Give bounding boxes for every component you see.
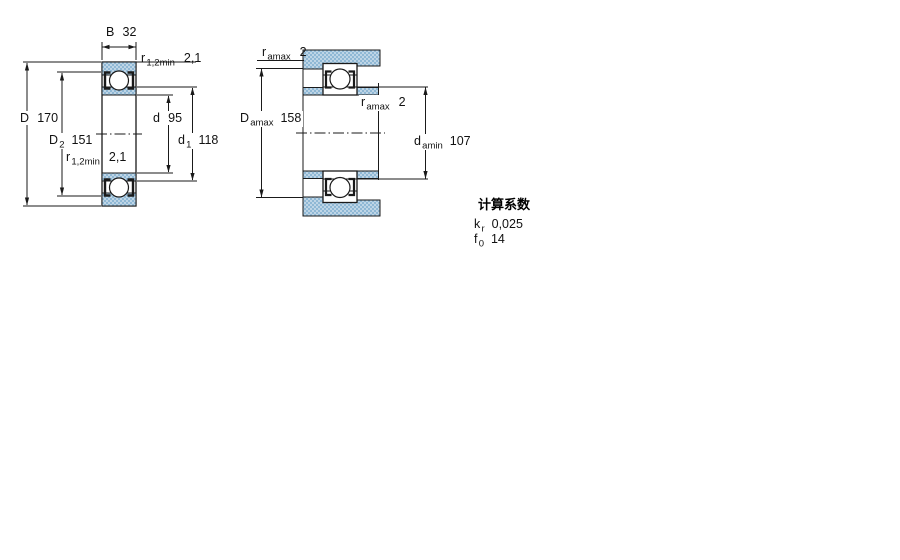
ball-top-right-figure (330, 69, 350, 89)
calc-factors-title: 计算系数 (478, 194, 530, 213)
ball-bottom (110, 178, 129, 197)
diagram-linework (0, 0, 900, 560)
dim-label-ramax-mid: ramax2 (359, 95, 408, 111)
dim-label-r12min-top: r1,2min2,1 (141, 51, 201, 67)
dim-label-D: D170 (18, 111, 60, 125)
dim-label-d1: d1118 (176, 133, 220, 149)
dim-label-D2: D2151 (47, 133, 94, 149)
ball-bottom-right-figure (330, 178, 350, 198)
ball-top (110, 71, 129, 90)
calc-factor-f0: f014 (474, 232, 505, 248)
figure-abutment (256, 50, 428, 216)
dim-label-d: d95 (151, 111, 184, 125)
dim-label-ramax-top: ramax2 (262, 45, 307, 61)
dim-label-damin: damin107 (412, 134, 473, 150)
bearing-diagram-page: B32 r1,2min2,1 D170 D2151 d95 d1118 r1,2… (0, 0, 900, 560)
dim-label-Damax: Damax158 (238, 111, 303, 127)
dim-label-r12min-bottom: r1,2min2,1 (66, 150, 126, 166)
dim-label-B: B32 (106, 25, 136, 39)
calc-factor-kr: kr0,025 (474, 217, 523, 233)
